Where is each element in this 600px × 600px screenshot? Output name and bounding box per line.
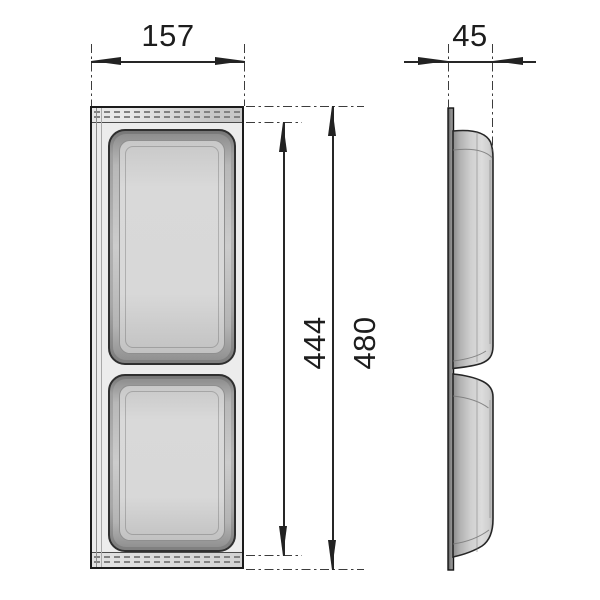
dimension-label-width: 157 (118, 20, 218, 52)
side-upper-tray-profile (453, 131, 493, 369)
dimension-line-inner-height (283, 122, 285, 556)
dimension-label-overall-height: 480 (349, 283, 381, 403)
extension-line (244, 44, 245, 106)
arrowhead (91, 57, 121, 65)
technical-drawing-canvas: 157 45 444 480 (0, 0, 600, 600)
hatch-dashes (94, 116, 240, 118)
lower-tray-recess (108, 374, 236, 552)
side-view (440, 100, 510, 580)
front-view-panel (90, 106, 244, 569)
arrowhead (328, 106, 336, 136)
dimension-label-depth: 45 (420, 20, 520, 52)
extension-line (246, 106, 364, 107)
hatch-dashes (94, 556, 240, 558)
arrowhead (418, 57, 448, 65)
arrowhead (279, 526, 287, 556)
dimension-line-overall-height (332, 106, 334, 570)
bottom-hatch-band (92, 552, 242, 567)
extension-line (246, 569, 364, 570)
extension-line (448, 44, 449, 108)
upper-tray-recess (108, 129, 236, 365)
extension-line (91, 44, 92, 106)
arrowhead (215, 57, 245, 65)
extension-line (246, 122, 302, 123)
hatch-dashes (94, 561, 240, 563)
tray-floor (119, 385, 225, 541)
top-hatch-band (92, 108, 242, 123)
left-lip-line (96, 108, 97, 567)
left-lip-line (101, 108, 102, 567)
extension-line (246, 555, 302, 556)
arrowhead (328, 540, 336, 570)
dimension-label-inner-height: 444 (299, 283, 331, 403)
side-lower-tray-profile (453, 374, 493, 557)
arrowhead (493, 57, 523, 65)
arrowhead (279, 122, 287, 152)
tray-floor (119, 140, 225, 354)
hatch-dashes (94, 111, 240, 113)
